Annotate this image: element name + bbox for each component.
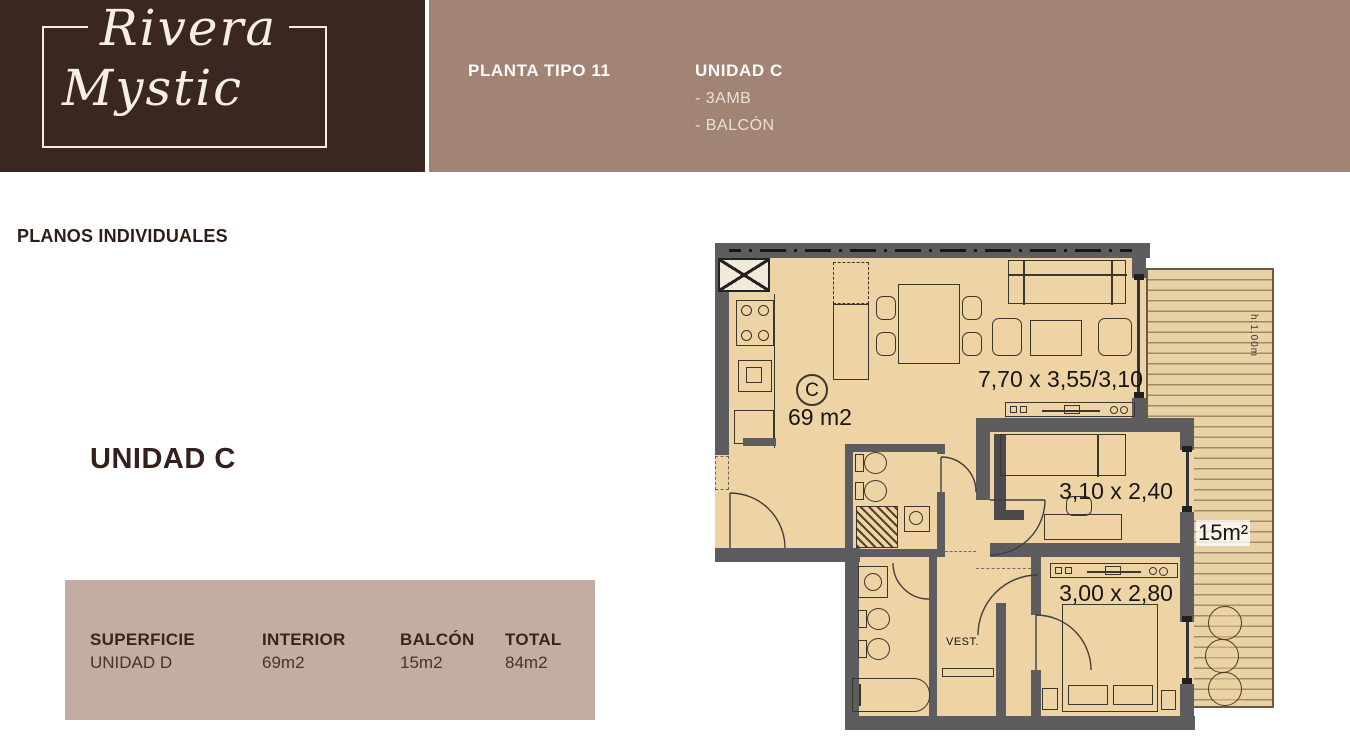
brand-name-line1: Rivera xyxy=(88,2,289,54)
unit-label-heading: UNIDAD C xyxy=(90,443,236,476)
summary-header: BALCÓN xyxy=(400,630,475,650)
brochure-page: Rivera Mystic PLANTA TIPO 11 UNIDAD C - … xyxy=(0,0,1350,755)
unit-info-block: UNIDAD C - 3AMB - BALCÓN xyxy=(695,61,783,135)
summary-header: SUPERFICIE xyxy=(90,630,195,650)
floorplan: C 69 m2 7,70 x 3,55/3,10 3,10 x 2,40 3,0… xyxy=(700,238,1300,748)
unit-letter: C xyxy=(805,380,819,401)
header-band: PLANTA TIPO 11 UNIDAD C - 3AMB - BALCÓN xyxy=(429,0,1350,172)
railing-height-note: h:1,00m xyxy=(1248,314,1259,357)
brand-logo-block: Rivera Mystic xyxy=(0,0,425,172)
summary-col-interior: INTERIOR 69m2 xyxy=(262,630,346,673)
unit-feature-balcony: - BALCÓN xyxy=(695,117,783,135)
unit-feature-rooms: - 3AMB xyxy=(695,90,783,108)
summary-col-total: TOTAL 84m2 xyxy=(505,630,562,673)
summary-value: 15m2 xyxy=(400,653,475,673)
plan-type-title: PLANTA TIPO 11 xyxy=(468,61,611,81)
closet-label: VEST. xyxy=(946,636,979,648)
surface-summary-panel: SUPERFICIE UNIDAD D INTERIOR 69m2 BALCÓN… xyxy=(65,580,595,720)
door-swing-arcs xyxy=(700,238,1300,748)
brand-name-line2: Mystic xyxy=(52,62,253,114)
summary-value: 84m2 xyxy=(505,653,562,673)
living-dimensions: 7,70 x 3,55/3,10 xyxy=(978,366,1140,393)
balcony-area-label: 15m² xyxy=(1196,520,1250,546)
section-heading: PLANOS INDIVIDUALES xyxy=(17,226,228,247)
summary-header: TOTAL xyxy=(505,630,562,650)
bedroom2-dimensions: 3,00 x 2,80 xyxy=(1050,580,1182,607)
summary-header: INTERIOR xyxy=(262,630,346,650)
unit-name: UNIDAD C xyxy=(695,61,783,81)
interior-area-label: 69 m2 xyxy=(788,404,852,431)
bedroom1-dimensions: 3,10 x 2,40 xyxy=(1050,478,1182,505)
unit-letter-badge: C xyxy=(796,374,828,406)
summary-value: 69m2 xyxy=(262,653,346,673)
summary-col-balcon: BALCÓN 15m2 xyxy=(400,630,475,673)
summary-value: UNIDAD D xyxy=(90,653,195,673)
summary-col-superficie: SUPERFICIE UNIDAD D xyxy=(90,630,195,673)
